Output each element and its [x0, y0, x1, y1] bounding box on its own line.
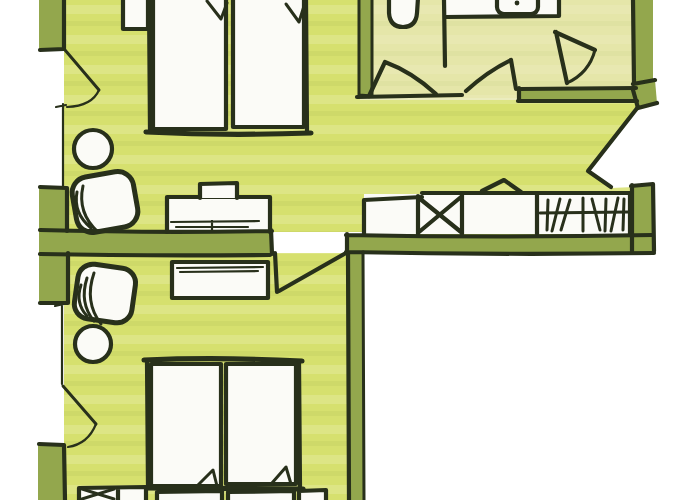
round-side-table-2	[75, 326, 111, 362]
nightstand-top	[123, 0, 149, 30]
armchair-1	[70, 169, 141, 235]
wall-left-top	[39, 0, 65, 49]
armchair-2	[72, 262, 137, 325]
window-bedroom-bottom	[55, 304, 64, 384]
sink-drain	[515, 1, 520, 6]
bed-top-footboard	[146, 132, 311, 134]
floor-plan-drawing	[0, 0, 700, 500]
bed-bottom-headboard	[144, 488, 303, 489]
wall-bathroom-west	[359, 0, 372, 96]
wall-left-bottom	[38, 443, 65, 500]
mattress-top-right	[233, 0, 304, 127]
round-side-table-1	[74, 130, 112, 168]
toilet	[389, 0, 418, 27]
floor-plan-sketch	[0, 0, 700, 500]
wall-bedroom-east-outer	[363, 252, 364, 500]
wall-bathroom-inner-divider	[444, 0, 445, 66]
wall-wardrobe-end	[631, 184, 654, 252]
mattress-bottom-left	[151, 364, 221, 486]
mattress-top-left	[153, 0, 226, 129]
bed-bottom-headline	[144, 359, 302, 361]
wall-bedroom-east-inner	[348, 253, 349, 500]
wall-bathroom-south	[357, 95, 462, 97]
